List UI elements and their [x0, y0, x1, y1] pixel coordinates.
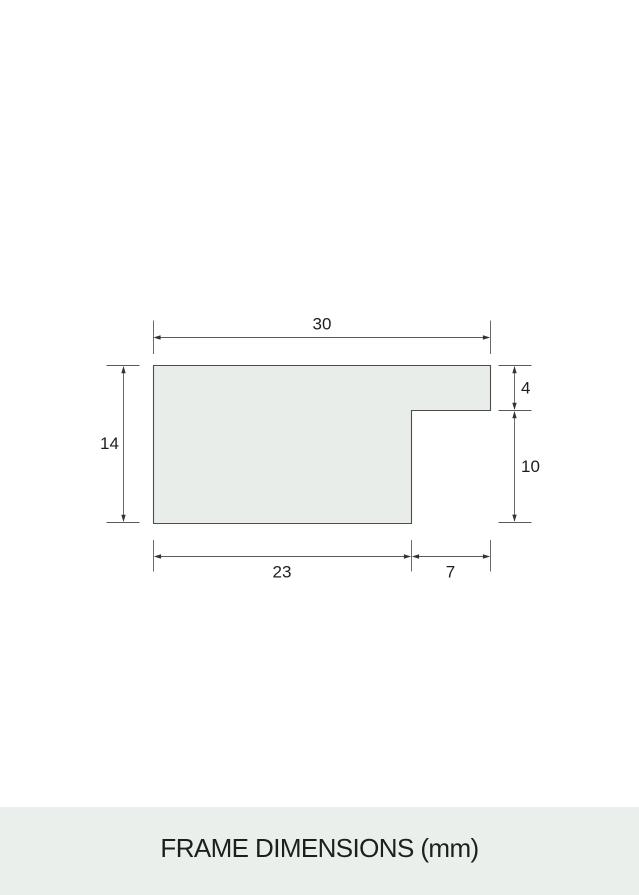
svg-text:14: 14 — [100, 434, 119, 453]
svg-text:4: 4 — [521, 379, 530, 398]
svg-text:10: 10 — [521, 457, 540, 476]
svg-text:23: 23 — [273, 562, 292, 581]
svg-text:30: 30 — [313, 314, 332, 333]
svg-text:7: 7 — [446, 562, 455, 581]
